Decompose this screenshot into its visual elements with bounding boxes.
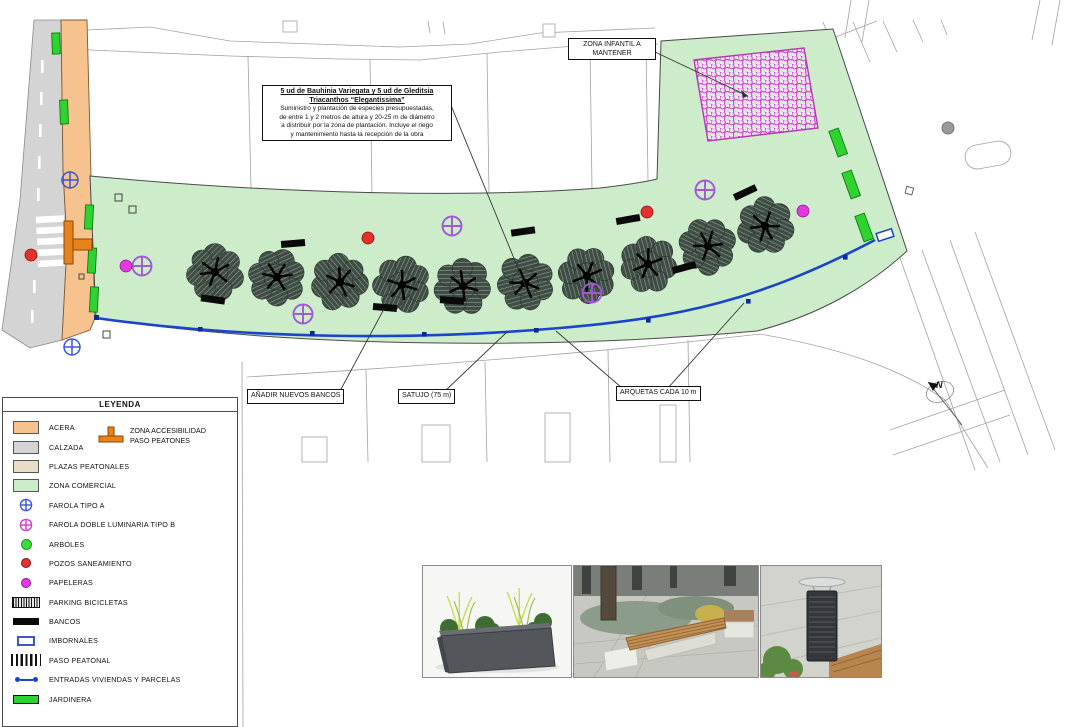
farola-a-icon xyxy=(18,497,34,513)
north-compass: N xyxy=(923,378,962,425)
accessibility-crossing-icon xyxy=(97,426,125,444)
paso-peatonal-swatch xyxy=(11,654,41,666)
accessibility-label: ZONA ACCESIBILIDAD PASO PEATONES xyxy=(125,426,206,445)
satujo-callout: SATUJO (75 m) xyxy=(398,389,455,404)
plazas-swatch xyxy=(13,460,39,473)
legend-item-arboles: ARBOLES xyxy=(3,534,237,553)
zona-infantil-line-2: MANTENER xyxy=(572,49,652,58)
arquetas-callout: ARQUETAS CADA 10 m xyxy=(616,386,701,401)
jardinera-swatch xyxy=(13,695,39,704)
imbornales-swatch xyxy=(17,636,35,646)
photo-papelera xyxy=(760,565,882,678)
legend-item-papeleras: PAPELERAS xyxy=(3,573,237,592)
imbornal-symbol xyxy=(905,186,914,195)
legend-item-jardinera: JARDINERA xyxy=(3,689,237,708)
legend-item-parking-bicicletas: PARKING BICICLETAS xyxy=(3,593,237,612)
acera-swatch xyxy=(13,421,39,434)
planting-note-title-1: 5 ud de Bauhinia Variegata y 5 ud de Gle… xyxy=(266,87,448,96)
entradas-swatch xyxy=(15,677,38,682)
zona-infantil-area xyxy=(694,48,818,141)
legend-item-zona-accesibilidad: ZONA ACCESIBILIDAD PASO PEATONES xyxy=(97,426,206,445)
street-dot xyxy=(942,122,954,134)
papeleras-dot xyxy=(21,578,31,588)
legend-item-paso-peatonal: PASO PEATONAL xyxy=(3,651,237,670)
bancos-swatch xyxy=(13,618,39,625)
site-plan-page: { "legend": { "title": "LEYENDA", "acces… xyxy=(0,0,1068,727)
legend-item-bancos: BANCOS xyxy=(3,612,237,631)
zona-infantil-line-1: ZONA INFANTIL A xyxy=(572,40,652,49)
legend-item-pozos: POZOS SANEAMIENTO xyxy=(3,554,237,573)
legend-item-plazas-peatonales: PLAZAS PEATONALES xyxy=(3,457,237,476)
legend-item-farola-tipo-a: FAROLA TIPO A xyxy=(3,496,237,515)
photo-jardinera xyxy=(422,565,572,678)
legend-item-zona-comercial: ZONA COMERCIAL xyxy=(3,476,237,495)
pozos-dot xyxy=(21,558,31,568)
zona-infantil-callout: ZONA INFANTIL A MANTENER xyxy=(568,38,656,60)
photo-banco xyxy=(573,565,759,678)
legend-title: LEYENDA xyxy=(3,398,237,412)
reference-photos xyxy=(422,565,882,678)
compass-north-label: N xyxy=(936,380,943,390)
planting-note-title-2: Triacanthos “Elegantissima” xyxy=(266,96,448,105)
legend-item-entradas: ENTRADAS VIVIENDAS Y PARCELAS xyxy=(3,670,237,689)
parking-bicicletas-swatch xyxy=(12,597,40,608)
anadir-bancos-callout: AÑADIR NUEVOS BANCOS xyxy=(247,389,344,404)
calzada-road xyxy=(2,20,67,348)
arboles-dot xyxy=(21,539,32,550)
planting-note-body-1: Suministro y plantación de especies pres… xyxy=(266,105,448,113)
planting-note-body-2: de entre 1 y 2 metros de altura y 20-25 … xyxy=(266,114,448,122)
calzada-swatch xyxy=(13,441,39,454)
legend-item-farola-tipo-b: FAROLA DOBLE LUMINARIA TIPO B xyxy=(3,515,237,534)
farola-b-icon xyxy=(18,517,34,533)
planting-note-body-4: y mantenimiento hasta la recepción de la… xyxy=(266,131,448,139)
planting-note-body-3: a distribuir por la zona de plantación. … xyxy=(266,122,448,130)
legend-item-imbornales: IMBORNALES xyxy=(3,631,237,650)
zona-comercial-swatch xyxy=(13,479,39,492)
planting-note-callout: 5 ud de Bauhinia Variegata y 5 ud de Gle… xyxy=(262,85,452,141)
legend-panel: LEYENDA ZONA ACCESIBILIDAD PASO PEATONES… xyxy=(2,397,238,727)
